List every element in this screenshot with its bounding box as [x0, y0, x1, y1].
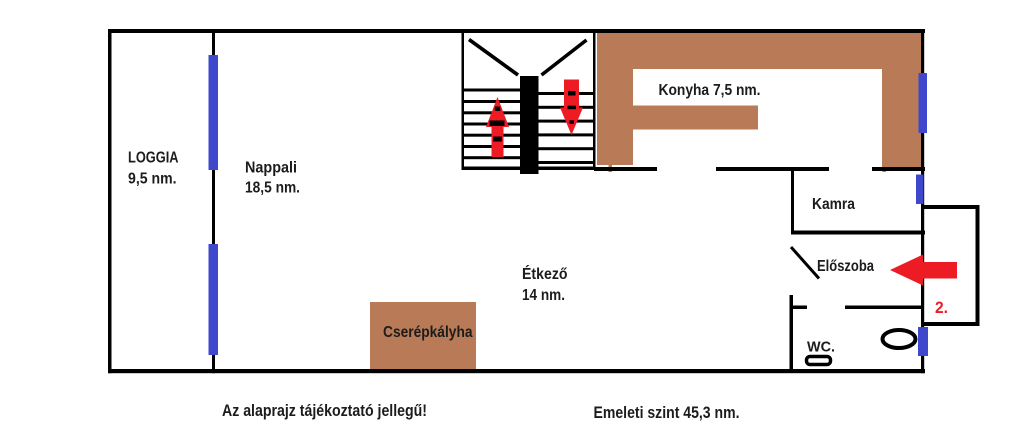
svg-text:Kamra: Kamra: [812, 196, 855, 213]
svg-text:Előszoba: Előszoba: [817, 258, 874, 275]
svg-text:14 nm.: 14 nm.: [522, 287, 565, 304]
svg-text:WC.: WC.: [807, 339, 835, 356]
svg-text:LOGGIA: LOGGIA: [128, 150, 179, 167]
svg-text:9,5 nm.: 9,5 nm.: [128, 171, 177, 188]
svg-text:Emeleti szint 45,3 nm.: Emeleti szint 45,3 nm.: [594, 403, 740, 422]
svg-text:Étkező: Étkező: [522, 264, 568, 283]
svg-text:Nappali: Nappali: [245, 160, 297, 177]
svg-text:Az alaprajz tájékoztató jelleg: Az alaprajz tájékoztató jellegű!: [222, 401, 427, 420]
svg-text:Cserépkályha: Cserépkályha: [383, 324, 473, 341]
svg-text:18,5 nm.: 18,5 nm.: [245, 180, 300, 197]
svg-text:Konyha 7,5 nm.: Konyha 7,5 nm.: [659, 82, 761, 99]
svg-text:2.: 2.: [935, 298, 948, 317]
